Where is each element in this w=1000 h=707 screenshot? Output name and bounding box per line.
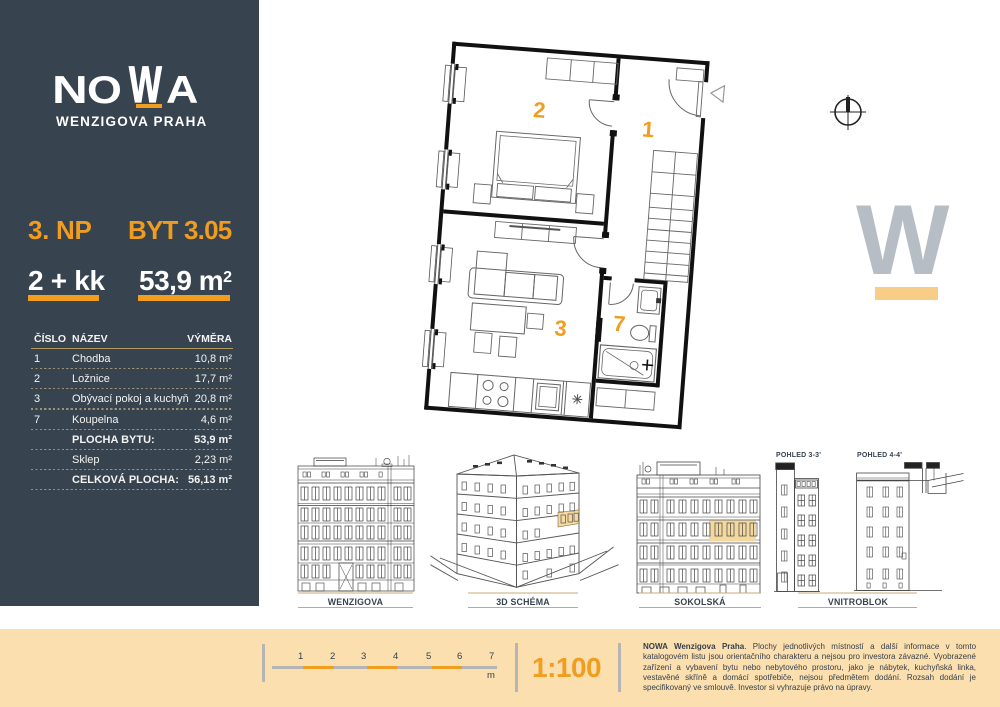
svg-text:3: 3 bbox=[554, 315, 568, 341]
svg-text:WENZIGOVA: WENZIGOVA bbox=[328, 597, 384, 607]
svg-text:1: 1 bbox=[641, 116, 655, 142]
svg-text:VNITROBLOK: VNITROBLOK bbox=[828, 597, 889, 607]
svg-text:POHLED 3-3': POHLED 3-3' bbox=[776, 452, 821, 459]
svg-text:POHLED 4-4': POHLED 4-4' bbox=[857, 452, 902, 459]
svg-text:SOKOLSKÁ: SOKOLSKÁ bbox=[674, 597, 726, 607]
svg-text:2: 2 bbox=[532, 97, 546, 123]
svg-text:3D SCHÉMA: 3D SCHÉMA bbox=[496, 597, 550, 607]
svg-text:7: 7 bbox=[612, 311, 626, 337]
